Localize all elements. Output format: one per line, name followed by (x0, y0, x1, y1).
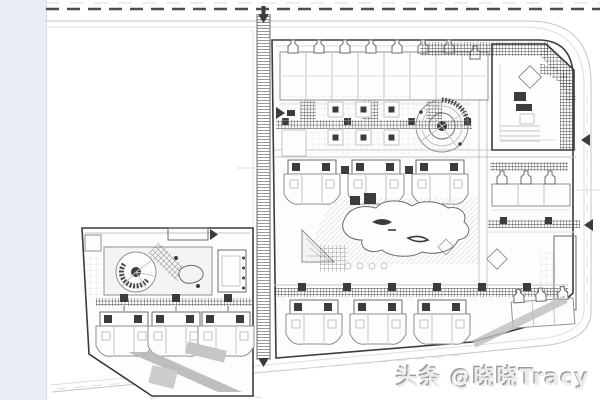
site-plan-page: 头条@晓晓Tracy (0, 0, 600, 400)
pond-plaza (302, 193, 507, 272)
site-plan-drawing (0, 0, 600, 400)
left-parcel (82, 228, 254, 396)
northwest-lawn (278, 96, 322, 156)
watermark-brand: 头条 (396, 360, 442, 392)
pavilion-court (322, 96, 414, 154)
sports-court (218, 250, 246, 292)
west-access-road (253, 14, 270, 360)
main-parcel (272, 40, 580, 358)
playground-area (104, 242, 212, 295)
north-road-dashed-centerlines (46, 3, 600, 9)
watermark: 头条@晓晓Tracy (396, 360, 590, 392)
spiral-plaza (414, 98, 470, 154)
watermark-handle: @晓晓Tracy (450, 360, 590, 392)
middle-housing-east (490, 162, 570, 210)
